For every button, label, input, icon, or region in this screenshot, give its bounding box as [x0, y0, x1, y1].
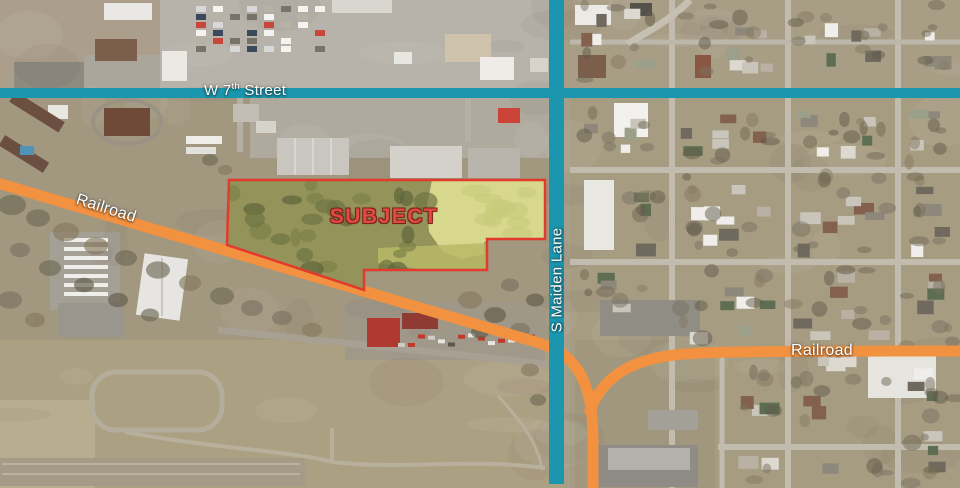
- railroad-line-east: [589, 351, 960, 414]
- annotation-layer: [0, 0, 960, 488]
- subject-label: SUBJECT: [330, 205, 439, 229]
- street-label-w-7th-prefix: W 7: [204, 82, 232, 99]
- railroad-label-east: Railroad: [791, 342, 853, 360]
- aerial-map: W 7th Street Railroad Railroad S Maiden …: [0, 0, 960, 488]
- street-line-w-7th: [0, 88, 960, 98]
- subject-parcel: [225, 176, 550, 296]
- street-label-s-maiden: S Maiden Lane: [549, 228, 566, 333]
- street-label-w-7th-sup: th: [232, 81, 240, 91]
- street-label-w-7th: W 7th Street: [204, 81, 286, 99]
- street-label-w-7th-suffix: Street: [240, 82, 286, 99]
